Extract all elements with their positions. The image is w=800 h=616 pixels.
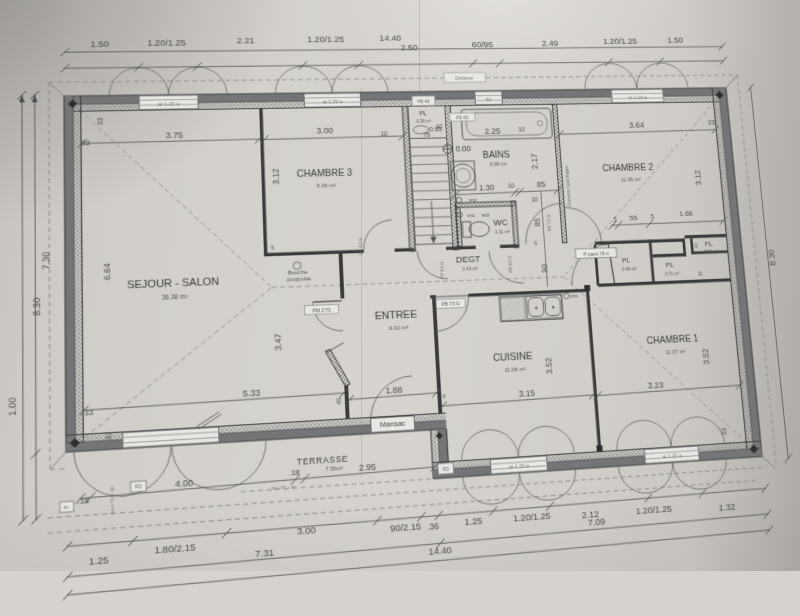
svg-text:5: 5 xyxy=(260,131,263,137)
svg-text:4.00: 4.00 xyxy=(175,478,193,490)
svg-text:Bouche: Bouche xyxy=(288,270,308,277)
svg-text:5: 5 xyxy=(534,241,537,247)
svg-text:PE 65: PE 65 xyxy=(456,116,469,122)
svg-text:5: 5 xyxy=(594,386,597,392)
svg-text:1.00: 1.00 xyxy=(7,397,18,416)
svg-text:7.31: 7.31 xyxy=(255,547,274,559)
svg-text:PL: PL xyxy=(704,240,713,249)
svg-text:PB 40: PB 40 xyxy=(417,100,430,106)
svg-text:.18: .18 xyxy=(289,468,300,478)
svg-text:5: 5 xyxy=(650,214,654,221)
svg-text:85: 85 xyxy=(537,181,546,190)
svg-text:11.06 m²: 11.06 m² xyxy=(504,367,526,374)
svg-text:11.36 m²: 11.36 m² xyxy=(620,177,641,183)
svg-text:5: 5 xyxy=(613,217,617,224)
svg-text:vmc: vmc xyxy=(469,199,478,204)
svg-text:P pano 78 d: P pano 78 d xyxy=(583,251,608,258)
svg-text:PL: PL xyxy=(622,256,631,265)
svg-text:CHAMBRE 3: CHAMBRE 3 xyxy=(297,168,353,180)
svg-text:45: 45 xyxy=(336,397,343,405)
svg-text:.36: .36 xyxy=(427,522,439,532)
svg-text:PL: PL xyxy=(419,111,427,118)
svg-text:Mansac: Mansac xyxy=(380,419,406,430)
svg-text:8.30: 8.30 xyxy=(767,249,777,266)
svg-text:10: 10 xyxy=(436,124,443,131)
svg-text:3.47: 3.47 xyxy=(273,333,284,351)
svg-text:at 1.20 a: at 1.20 a xyxy=(628,95,647,101)
svg-text:5: 5 xyxy=(271,246,274,252)
svg-text:8.30: 8.30 xyxy=(31,297,42,316)
svg-text:CUISINE: CUISINE xyxy=(493,352,533,365)
svg-text:1.80/2.15: 1.80/2.15 xyxy=(154,542,196,556)
svg-text:9.02 m²: 9.02 m² xyxy=(389,326,409,333)
svg-text:.18: .18 xyxy=(77,496,89,506)
svg-text:PM 2'73: PM 2'73 xyxy=(312,308,331,315)
svg-text:10: 10 xyxy=(531,197,538,204)
svg-text:35: 35 xyxy=(698,271,704,276)
svg-text:1.20/1.25: 1.20/1.25 xyxy=(603,37,638,46)
svg-text:33: 33 xyxy=(84,408,93,418)
svg-text:2.49: 2.49 xyxy=(542,38,559,47)
svg-text:wch: wch xyxy=(482,213,490,218)
svg-text:5.33: 5.33 xyxy=(243,388,261,399)
svg-text:vmc: vmc xyxy=(467,213,476,218)
svg-text:3.75: 3.75 xyxy=(166,130,184,140)
svg-text:7.09: 7.09 xyxy=(588,516,606,527)
svg-text:1.20/1.25: 1.20/1.25 xyxy=(307,34,344,43)
svg-text:PB 73 G: PB 73 G xyxy=(441,302,460,309)
svg-text:60/95: 60/95 xyxy=(472,40,494,49)
svg-text:2.50: 2.50 xyxy=(400,43,417,52)
svg-text:3.12: 3.12 xyxy=(271,168,282,185)
svg-text:3.52: 3.52 xyxy=(701,348,712,365)
svg-text:3.14 m²: 3.14 m² xyxy=(462,267,478,273)
svg-text:55: 55 xyxy=(629,214,637,222)
svg-text:0.71 m²: 0.71 m² xyxy=(665,271,680,276)
svg-text:2.17: 2.17 xyxy=(529,153,539,169)
svg-text:at 1.20 a: at 1.20 a xyxy=(158,102,179,108)
svg-text:14.40: 14.40 xyxy=(379,34,401,43)
svg-text:RD: RD xyxy=(135,485,142,491)
svg-text:vmc: vmc xyxy=(570,294,579,299)
svg-text:0.49 m²: 0.49 m² xyxy=(622,267,637,272)
svg-text:11.37 m²: 11.37 m² xyxy=(665,349,686,356)
svg-text:1.32: 1.32 xyxy=(718,502,735,513)
svg-text:1.25: 1.25 xyxy=(464,516,482,528)
svg-text:60: 60 xyxy=(486,98,492,104)
svg-text:3.15: 3.15 xyxy=(518,388,535,399)
svg-text:1.25: 1.25 xyxy=(89,555,109,567)
svg-text:1.11 m²: 1.11 m² xyxy=(495,229,511,235)
svg-text:10: 10 xyxy=(518,127,525,133)
svg-text:10: 10 xyxy=(508,184,515,191)
svg-text:CHAMBRE 2: CHAMBRE 2 xyxy=(602,163,654,174)
svg-text:PP 73 G: PP 73 G xyxy=(546,214,553,231)
svg-text:poujoulat: poujoulat xyxy=(287,276,311,283)
svg-text:85: 85 xyxy=(533,217,542,226)
svg-text:5: 5 xyxy=(442,394,446,400)
svg-text:2.21: 2.21 xyxy=(237,36,255,45)
svg-text:7.30: 7.30 xyxy=(41,252,52,270)
svg-text:1.88: 1.88 xyxy=(385,385,402,396)
svg-text:33: 33 xyxy=(81,138,90,147)
svg-text:10: 10 xyxy=(381,131,389,138)
svg-text:at 1.20 a: at 1.20 a xyxy=(322,100,342,106)
svg-text:2.95: 2.95 xyxy=(359,462,377,473)
svg-text:55: 55 xyxy=(694,243,700,248)
svg-text:WC: WC xyxy=(493,218,508,228)
svg-text:14.40: 14.40 xyxy=(428,545,452,557)
svg-text:33: 33 xyxy=(707,119,715,127)
svg-text:Cloisons hydrofuges: Cloisons hydrofuges xyxy=(564,165,573,207)
svg-text:DEGT: DEGT xyxy=(456,254,481,264)
svg-text:0.71 m²: 0.71 m² xyxy=(704,249,719,254)
svg-text:7.35m²: 7.35m² xyxy=(325,466,342,473)
svg-text:1.20/1.25: 1.20/1.25 xyxy=(147,38,186,48)
svg-text:2.25: 2.25 xyxy=(484,126,501,135)
svg-text:33: 33 xyxy=(719,428,728,436)
svg-text:3.12: 3.12 xyxy=(693,170,703,186)
svg-text:1.50: 1.50 xyxy=(667,35,683,44)
svg-text:1.20/1.25: 1.20/1.25 xyxy=(513,511,551,524)
svg-text:1.68: 1.68 xyxy=(679,210,693,219)
svg-text:Seuil TN + 30: Seuil TN + 30 xyxy=(109,486,115,515)
svg-text:90/2.15: 90/2.15 xyxy=(390,521,421,534)
svg-text:RD: RD xyxy=(443,467,450,472)
svg-text:CHAMBRE 1: CHAMBRE 1 xyxy=(646,334,698,347)
svg-text:90: 90 xyxy=(540,264,549,273)
svg-text:0.00: 0.00 xyxy=(455,145,471,154)
svg-text:6.99 m²: 6.99 m² xyxy=(490,162,507,168)
svg-text:1.30: 1.30 xyxy=(479,184,495,193)
svg-text:Detasse: Detasse xyxy=(455,76,474,82)
svg-text:3.23: 3.23 xyxy=(647,380,664,390)
svg-text:PP 63 G: PP 63 G xyxy=(358,237,365,255)
svg-text:PP 63 G: PP 63 G xyxy=(439,261,446,279)
svg-text:PP 63 G: PP 63 G xyxy=(507,255,514,273)
svg-text:BC: BC xyxy=(64,505,70,511)
svg-text:PL: PL xyxy=(665,261,674,270)
svg-text:ENTREE: ENTREE xyxy=(374,309,417,323)
svg-text:9.36 m²: 9.36 m² xyxy=(316,183,336,189)
svg-text:SEJOUR - SALON: SEJOUR - SALON xyxy=(127,276,219,291)
svg-text:3.52: 3.52 xyxy=(544,357,555,374)
svg-text:3.00: 3.00 xyxy=(316,126,333,136)
svg-text:1.50: 1.50 xyxy=(90,39,108,49)
svg-text:0.38 m²: 0.38 m² xyxy=(416,119,432,124)
svg-text:BAINS: BAINS xyxy=(483,150,511,161)
svg-text:33: 33 xyxy=(95,118,104,126)
svg-text:6.64: 6.64 xyxy=(102,263,113,281)
svg-text:Bati TN + 30: Bati TN + 30 xyxy=(272,484,296,491)
svg-text:33: 33 xyxy=(104,431,114,440)
svg-text:3.64: 3.64 xyxy=(629,120,645,129)
svg-text:36.38 m²: 36.38 m² xyxy=(162,294,188,302)
svg-text:1.20/1.25: 1.20/1.25 xyxy=(635,504,672,517)
